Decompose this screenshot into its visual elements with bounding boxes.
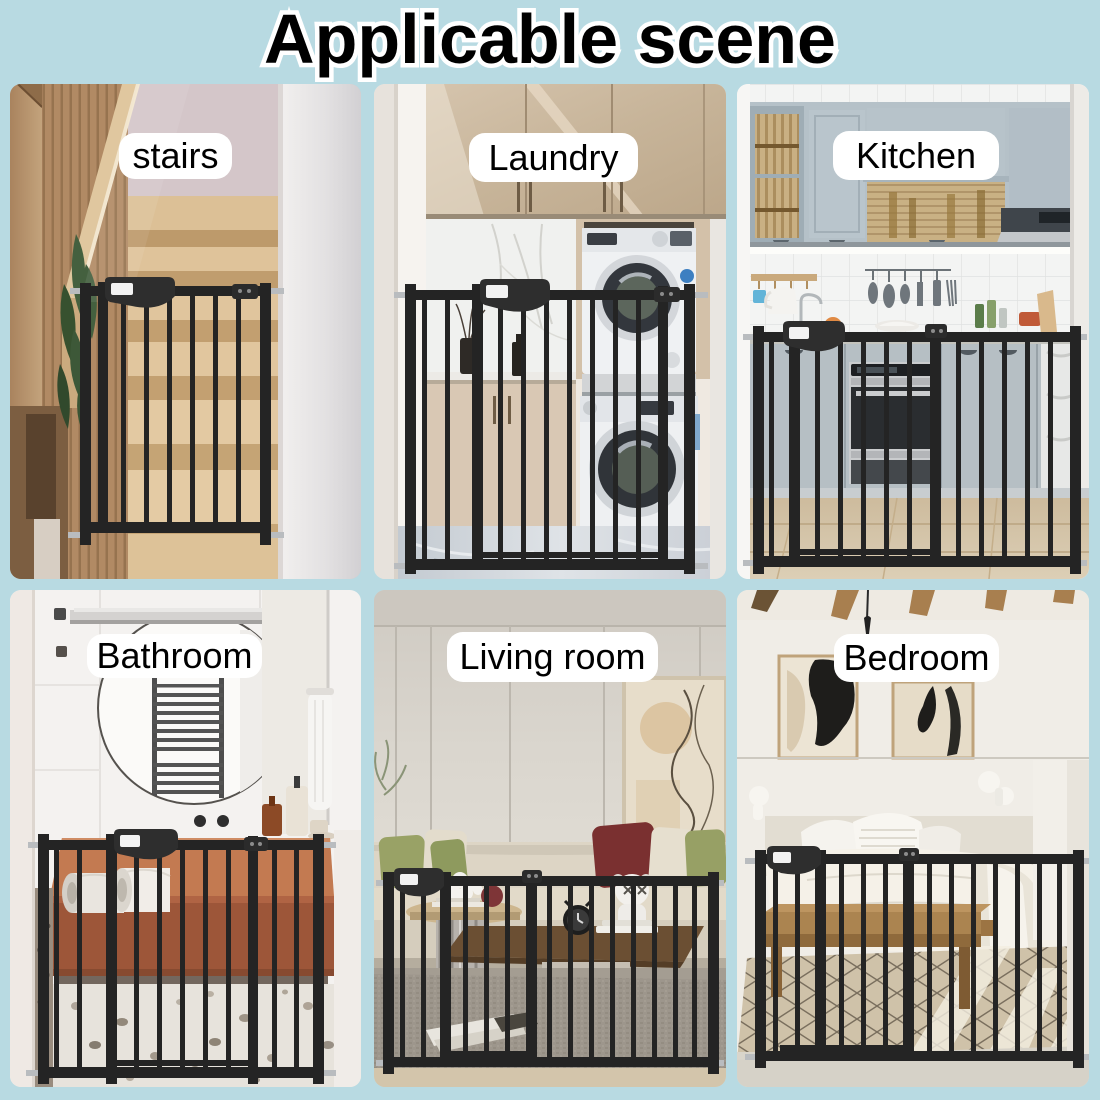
svg-text:Applicable scene: Applicable scene (264, 0, 836, 78)
